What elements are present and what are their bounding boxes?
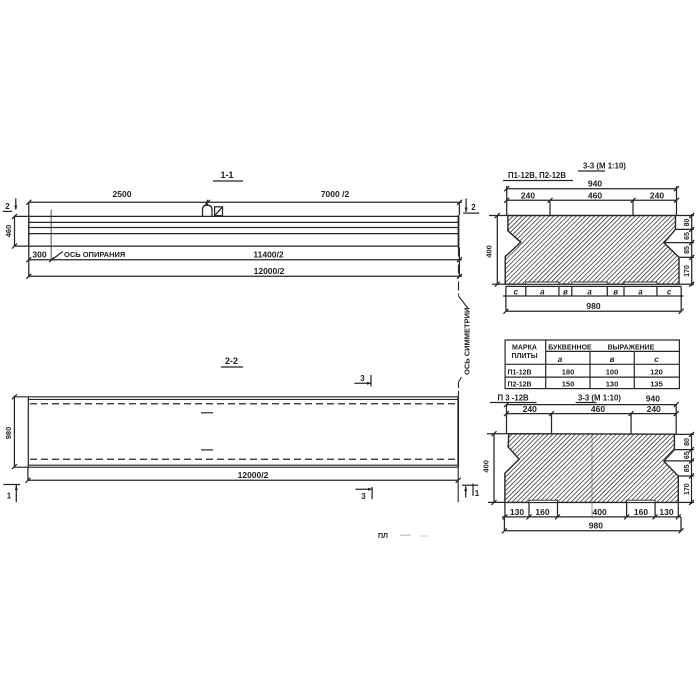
svg-text:170: 170 <box>684 265 691 277</box>
svg-text:2: 2 <box>5 202 10 211</box>
svg-text:a: a <box>540 287 545 296</box>
svg-text:980: 980 <box>4 427 13 440</box>
svg-text:130: 130 <box>659 507 673 517</box>
svg-text:120: 120 <box>650 368 663 377</box>
svg-text:80: 80 <box>684 438 691 446</box>
svg-text:3: 3 <box>360 374 365 383</box>
svg-text:2500: 2500 <box>113 189 132 199</box>
svg-text:85: 85 <box>684 464 691 472</box>
svg-text:240: 240 <box>521 190 535 200</box>
svg-text:ОСЬ ОПИРАНИЯ: ОСЬ ОПИРАНИЯ <box>64 250 125 259</box>
svg-text:ОСЬ СИММЕТРИИ: ОСЬ СИММЕТРИИ <box>463 308 472 375</box>
svg-text:МАРКА: МАРКА <box>512 345 537 352</box>
svg-text:460: 460 <box>588 190 602 200</box>
svg-text:ПЛ: ПЛ <box>378 533 388 540</box>
svg-text:в: в <box>610 355 615 364</box>
svg-text:a: a <box>638 287 643 296</box>
svg-text:2: 2 <box>471 203 476 212</box>
svg-text:12000/2: 12000/2 <box>238 470 269 480</box>
svg-text:7000 /2: 7000 /2 <box>321 189 350 199</box>
svg-text:150: 150 <box>562 380 575 389</box>
svg-text:240: 240 <box>647 404 661 414</box>
svg-text:П2-12В: П2-12В <box>508 382 532 389</box>
svg-text:240: 240 <box>523 404 537 414</box>
svg-text:160: 160 <box>634 507 648 517</box>
svg-text:3-3 (М 1:10): 3-3 (М 1:10) <box>578 394 621 403</box>
svg-text:65: 65 <box>684 232 691 240</box>
svg-text:1: 1 <box>475 489 480 498</box>
svg-text:П1-12В, П2-12В: П1-12В, П2-12В <box>508 171 566 180</box>
svg-text:180: 180 <box>562 368 575 377</box>
svg-text:c: c <box>514 287 519 296</box>
svg-text:1-1: 1-1 <box>220 170 233 180</box>
svg-text:в: в <box>563 287 568 296</box>
svg-text:940: 940 <box>588 179 602 189</box>
svg-text:170: 170 <box>684 483 691 495</box>
svg-text:12000/2: 12000/2 <box>254 266 285 276</box>
svg-text:П1-12В: П1-12В <box>508 370 532 377</box>
svg-text:a: a <box>558 355 563 364</box>
svg-text:460: 460 <box>4 225 13 238</box>
svg-text:160: 160 <box>535 507 549 517</box>
svg-text:в: в <box>613 287 618 296</box>
svg-text:240: 240 <box>650 190 664 200</box>
svg-text:c: c <box>654 355 659 364</box>
svg-text:11400/2: 11400/2 <box>253 250 284 260</box>
svg-text:2-2: 2-2 <box>225 356 238 366</box>
svg-text:c: c <box>667 287 672 296</box>
svg-text:a: a <box>587 287 592 296</box>
svg-text:400: 400 <box>481 460 490 473</box>
svg-text:ВЫРАЖЕНИЕ: ВЫРАЖЕНИЕ <box>608 345 655 352</box>
svg-text:ПЛИТЫ: ПЛИТЫ <box>511 353 537 360</box>
svg-text:100: 100 <box>606 368 619 377</box>
svg-text:130: 130 <box>510 507 524 517</box>
svg-text:130: 130 <box>606 380 619 389</box>
svg-text:П 3 -12В: П 3 -12В <box>498 394 530 403</box>
svg-text:1: 1 <box>7 492 12 501</box>
svg-text:400: 400 <box>485 245 494 258</box>
svg-text:65: 65 <box>684 451 691 459</box>
svg-text:300: 300 <box>32 250 46 260</box>
svg-text:80: 80 <box>684 219 691 227</box>
svg-text:3-3 (М 1:10): 3-3 (М 1:10) <box>583 162 626 171</box>
svg-text:400: 400 <box>593 507 607 517</box>
svg-text:940: 940 <box>646 394 660 404</box>
svg-text:980: 980 <box>589 520 603 530</box>
svg-text:980: 980 <box>586 301 600 311</box>
svg-text:85: 85 <box>684 246 691 254</box>
svg-text:460: 460 <box>591 404 605 414</box>
svg-text:3: 3 <box>361 492 366 501</box>
svg-text:БУКВЕННОЕ: БУКВЕННОЕ <box>548 345 592 352</box>
svg-text:135: 135 <box>650 380 663 389</box>
